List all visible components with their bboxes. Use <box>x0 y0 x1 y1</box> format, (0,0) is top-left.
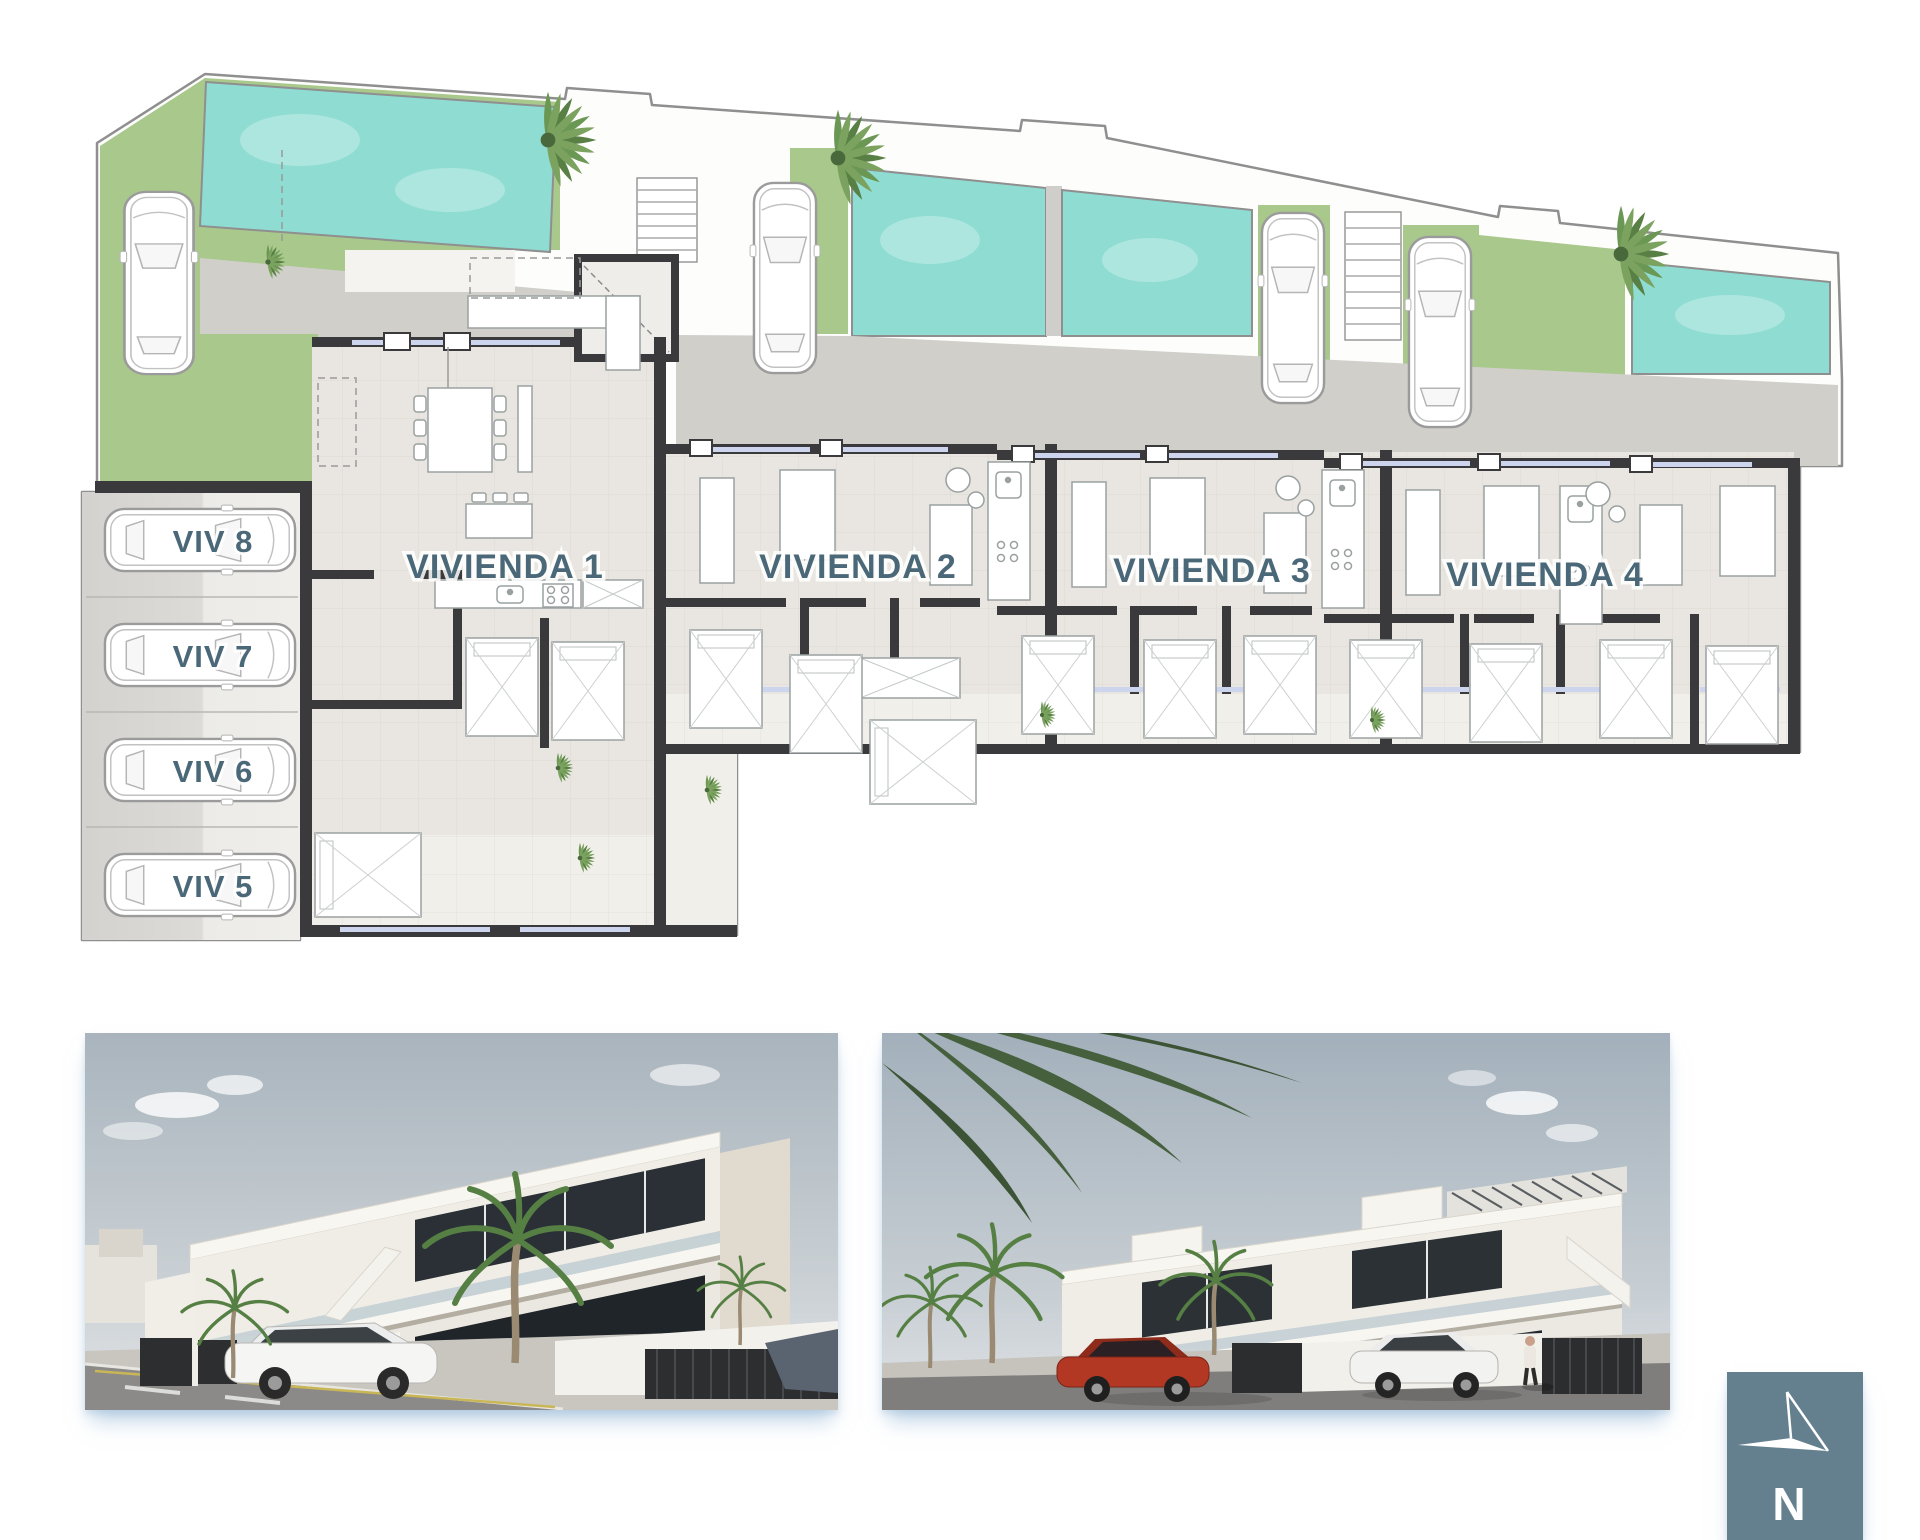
bed <box>1600 640 1672 738</box>
pool-1 <box>200 82 556 252</box>
bed <box>790 655 862 753</box>
bed <box>1470 644 1542 742</box>
car-top-view <box>750 183 820 373</box>
lounge-chair <box>1720 486 1775 576</box>
bed <box>690 630 762 728</box>
building-rendering-2 <box>882 1033 1670 1410</box>
sofa <box>700 478 734 583</box>
tv-unit <box>518 386 532 472</box>
building-rendering-1 <box>85 1033 838 1410</box>
north-label: N <box>1772 1478 1805 1530</box>
unit-label: VIVIENDA 3 <box>1113 552 1311 590</box>
unit-label: VIVIENDA 1 <box>406 548 604 586</box>
site-floor-plan: VIVIENDA 1 VIVIENDA 2 VIVIENDA 3 VIVIEND… <box>0 0 1920 1000</box>
real-estate-plan-sheet: { "plan": { "units": [ {"label": "VIVIEN… <box>0 0 1920 1540</box>
car-top-view <box>120 192 198 374</box>
bed <box>1706 646 1778 744</box>
parking-stall-label: VIV 6 <box>173 754 254 789</box>
wardrobe <box>860 658 960 698</box>
bed <box>315 833 421 917</box>
car-top-view <box>1258 213 1328 403</box>
parking-stall-label: VIV 8 <box>173 524 254 559</box>
bed <box>1244 636 1316 734</box>
car-top-view <box>1405 237 1475 427</box>
kitchen-island <box>466 493 532 538</box>
parking-stall-label: VIV 5 <box>173 869 254 904</box>
north-compass: N <box>1727 1372 1863 1540</box>
bed <box>870 720 976 804</box>
bed <box>1350 640 1422 738</box>
bed <box>1144 640 1216 738</box>
sofa <box>1406 490 1440 595</box>
kitchen-counter <box>988 462 1030 600</box>
kitchen-island <box>1640 505 1682 585</box>
unit-label: VIVIENDA 2 <box>759 548 957 586</box>
sofa <box>1072 482 1106 587</box>
bed <box>552 642 624 740</box>
parking-stall-label: VIV 7 <box>173 639 254 674</box>
kitchen-counter <box>1322 470 1364 608</box>
unit-label: VIVIENDA 4 <box>1446 556 1644 594</box>
bed <box>466 638 538 736</box>
kitchen-counter <box>1560 486 1602 624</box>
dining-table <box>414 388 506 472</box>
lounge-chair <box>780 470 835 560</box>
bed <box>1022 636 1094 734</box>
